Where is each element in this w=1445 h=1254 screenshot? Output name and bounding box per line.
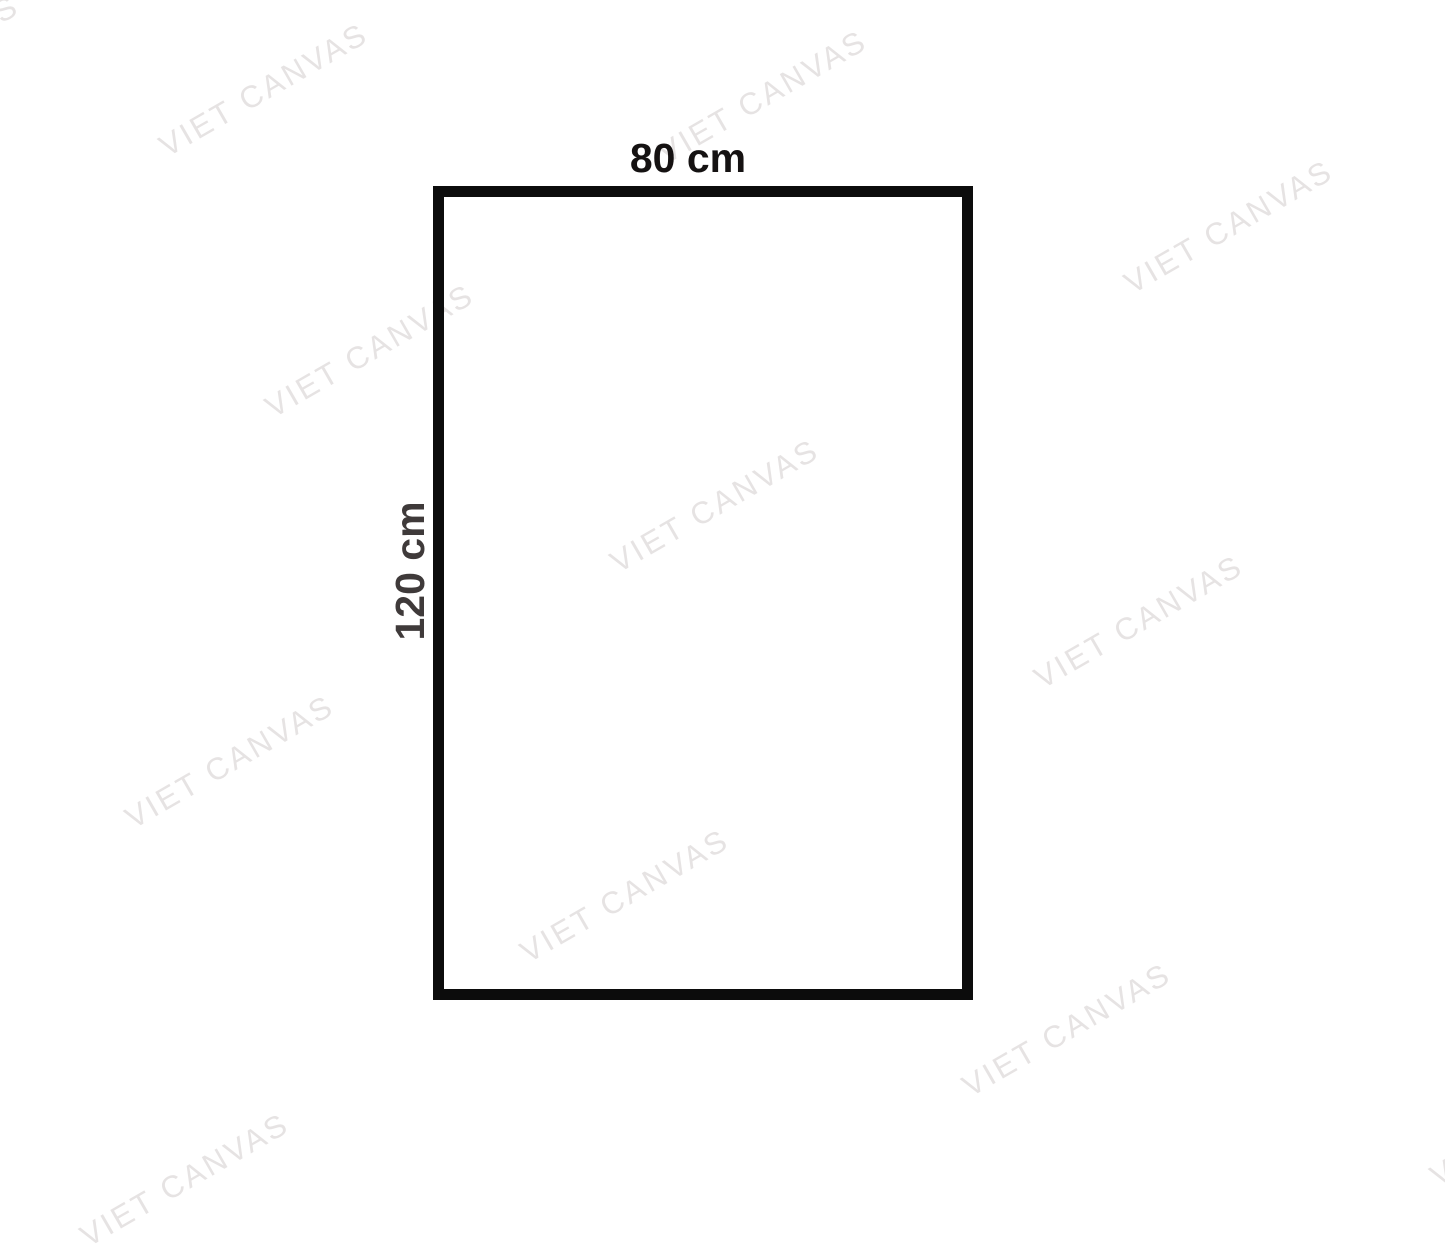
height-dimension-label: 120 cm: [388, 501, 432, 640]
size-diagram: 80 cm 120 cm: [0, 0, 1445, 1156]
page: VIET CANVASVIET CANVASVIET CANVASVIET CA…: [0, 0, 1445, 1156]
width-dimension-label: 80 cm: [630, 136, 746, 180]
canvas-rectangle: [433, 186, 973, 1000]
